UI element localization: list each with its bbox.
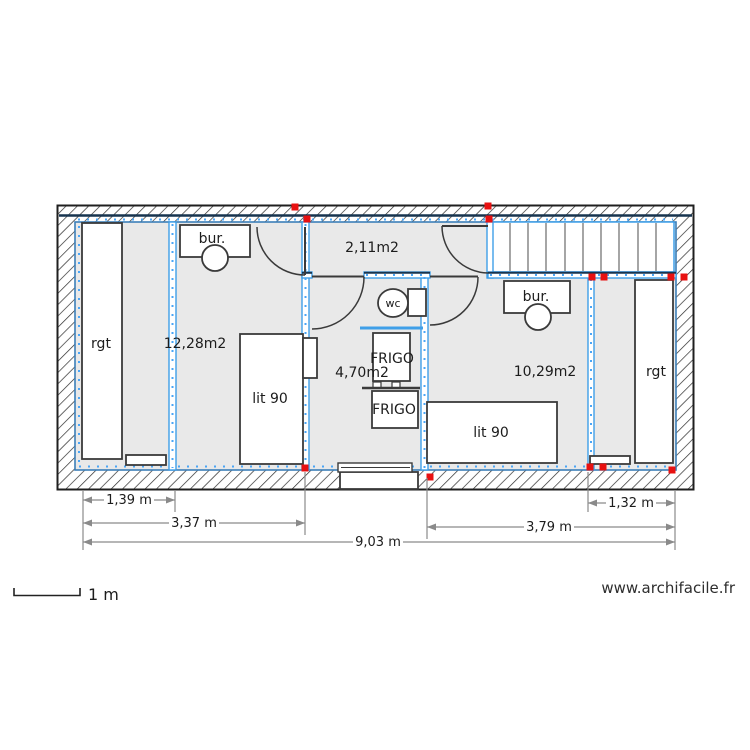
south-door-opening[interactable]: [340, 472, 418, 489]
label-storage-left: rgt: [91, 336, 111, 352]
dim-storage-left: 1,39 m: [106, 493, 152, 508]
junction-marker[interactable]: [601, 274, 608, 281]
toilet-tank[interactable]: [408, 289, 426, 316]
watermark: www.archifacile.fr: [601, 579, 735, 597]
label-toilet: wc: [385, 297, 400, 310]
scale-bar-line: [14, 588, 80, 596]
label-fridge-bottom: FRIGO: [372, 402, 416, 418]
wall-hallway-stairs[interactable]: [487, 222, 493, 278]
junction-marker[interactable]: [302, 465, 309, 472]
chair-left[interactable]: [202, 245, 228, 271]
dim-storage-right: 1,32 m: [608, 496, 654, 511]
dim-right-section: 3,79 m: [526, 520, 572, 535]
label-desk-left: bur.: [199, 231, 226, 247]
junction-marker[interactable]: [589, 274, 596, 281]
junction-marker[interactable]: [485, 203, 492, 210]
label-storage-right: rgt: [646, 364, 666, 380]
junction-marker[interactable]: [600, 464, 607, 471]
label-desk-right: bur.: [523, 289, 550, 305]
label-bed-right: lit 90: [473, 425, 509, 441]
label-area-bedroom-right: 10,29m2: [514, 364, 577, 380]
dim-total: 9,03 m: [355, 535, 401, 550]
dim-left-section: 3,37 m: [171, 516, 217, 531]
junction-marker[interactable]: [681, 274, 688, 281]
partition-window[interactable]: [303, 338, 317, 378]
junction-marker[interactable]: [668, 274, 675, 281]
label-bed-left: lit 90: [252, 391, 288, 407]
scale-bar-label: 1 m: [88, 585, 119, 604]
junction-marker[interactable]: [304, 216, 311, 223]
junction-marker[interactable]: [587, 464, 594, 471]
label-area-kitchen: 4,70m2: [335, 365, 389, 381]
junction-marker[interactable]: [486, 216, 493, 223]
junction-marker[interactable]: [669, 467, 676, 474]
dimensions: 1,39 m 3,37 m 9,03 m 1,32 m 3,79 m: [83, 493, 675, 550]
label-area-bedroom-left: 12,28m2: [164, 336, 227, 352]
floor-plan-svg: rgt 12,28m2 bur. lit 90 2,11m2 wc FRIGO …: [0, 0, 750, 750]
scale-bar: 1 m: [14, 585, 119, 604]
stairs[interactable]: [492, 222, 674, 272]
junction-marker[interactable]: [292, 204, 299, 211]
shelf-right[interactable]: [590, 456, 630, 464]
label-area-hallway: 2,11m2: [345, 240, 399, 256]
chair-right[interactable]: [525, 304, 551, 330]
shelf-left[interactable]: [126, 455, 166, 465]
floor-plan-page: rgt 12,28m2 bur. lit 90 2,11m2 wc FRIGO …: [0, 0, 750, 750]
